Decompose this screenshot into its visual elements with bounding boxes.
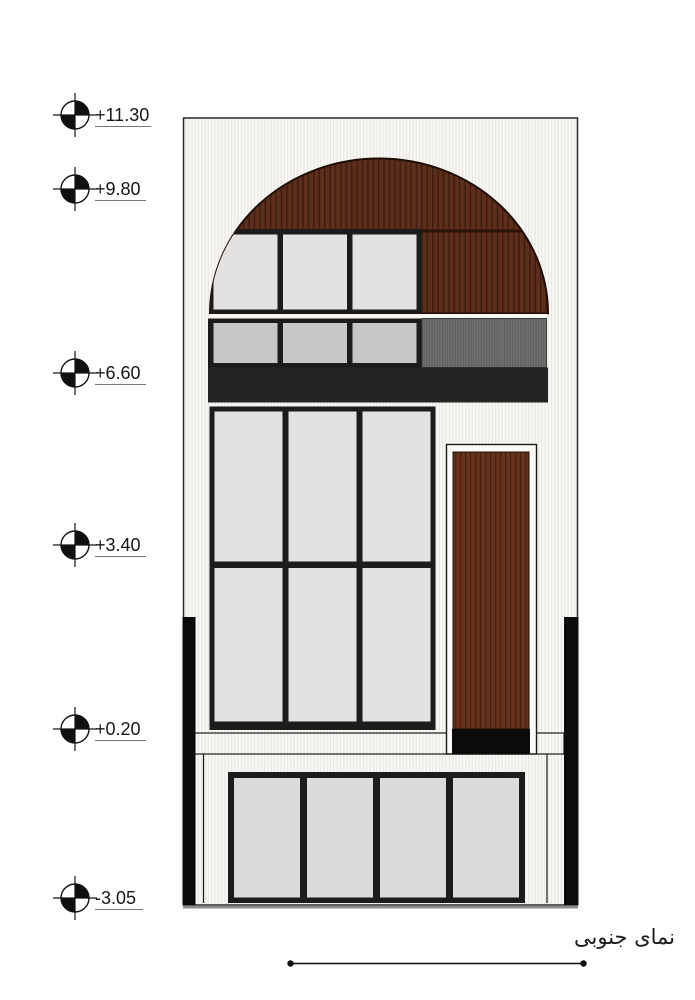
- ground-line: [183, 906, 578, 909]
- elevation-drawing: +11.30 +9.80 +6.60 +3.40 +0.20 -3.05: [0, 0, 695, 1000]
- benchmark-icon: [53, 167, 97, 211]
- sill-strip: [208, 314, 548, 319]
- level-markers: +11.30 +9.80 +6.60 +3.40 +0.20 -3.05: [53, 93, 152, 920]
- main-window-pane-r2c1: [215, 568, 283, 722]
- level-label: +6.60: [95, 363, 141, 383]
- clerestory-pane-2: [283, 323, 347, 363]
- left-wall-bar: [183, 617, 196, 905]
- level-row: +11.30: [53, 93, 152, 137]
- right-wall-bar: [564, 617, 579, 905]
- level-label: -3.05: [95, 888, 136, 908]
- main-window-pane-r2c2: [289, 568, 357, 722]
- clerestory-pane-1: [214, 323, 278, 363]
- basement-pane-3: [380, 778, 446, 898]
- level-row: +6.60: [53, 351, 146, 395]
- door-threshold: [452, 729, 530, 754]
- level-row: +3.40: [53, 523, 146, 567]
- benchmark-icon: [53, 707, 97, 751]
- upper-window-pane-2: [283, 235, 347, 310]
- elevation-sheet: +11.30 +9.80 +6.60 +3.40 +0.20 -3.05: [0, 0, 695, 1000]
- metal-slat-panel: [422, 319, 547, 368]
- main-window-pane-r1c3: [363, 412, 431, 562]
- benchmark-icon: [53, 351, 97, 395]
- basement-pane-1: [234, 778, 300, 898]
- caption-text: نمای جنوبی: [574, 925, 675, 949]
- caption-block: نمای جنوبی: [287, 925, 675, 967]
- level-row: +0.20: [53, 707, 146, 751]
- upper-window-pane-3: [353, 235, 417, 310]
- main-window-pane-r1c2: [289, 412, 357, 562]
- caption-line-left-dot: [287, 960, 293, 966]
- wood-door: [453, 452, 529, 729]
- benchmark-icon: [53, 523, 97, 567]
- level-row: -3.05: [53, 876, 143, 920]
- main-window-pane-r2c3: [363, 568, 431, 722]
- main-window-pane-r1c1: [215, 412, 283, 562]
- level-label: +9.80: [95, 179, 141, 199]
- level-label: +3.40: [95, 535, 141, 555]
- level-label: +0.20: [95, 719, 141, 739]
- spandrel-band: [208, 368, 548, 403]
- benchmark-icon: [53, 93, 97, 137]
- caption-line-right-dot: [580, 960, 586, 966]
- basement-pane-2: [307, 778, 373, 898]
- basement-pane-4: [453, 778, 519, 898]
- clerestory-pane-3: [353, 323, 417, 363]
- level-label: +11.30: [95, 105, 149, 125]
- benchmark-icon: [53, 876, 97, 920]
- level-row: +9.80: [53, 167, 146, 211]
